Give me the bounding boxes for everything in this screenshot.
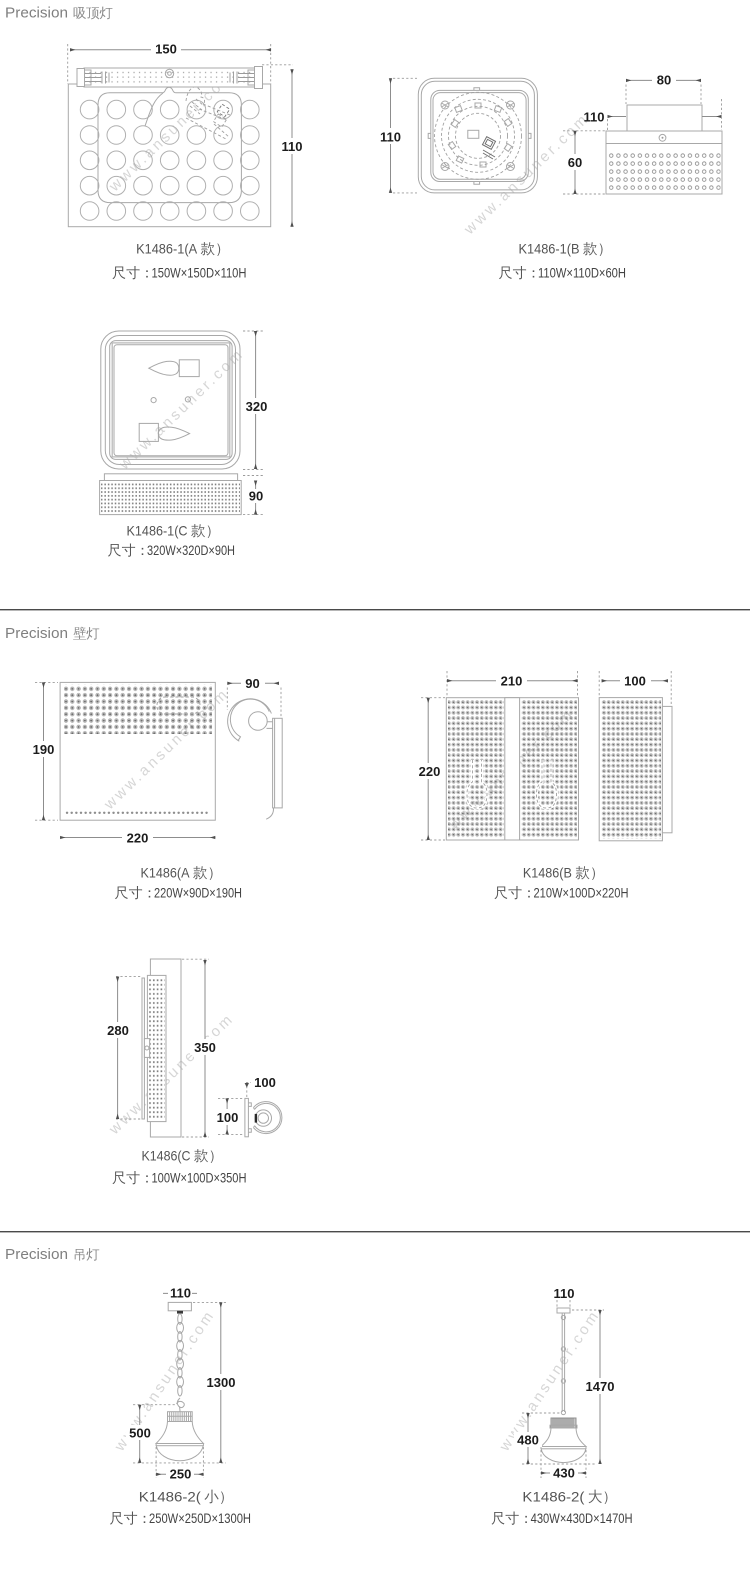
- svg-text:150: 150: [155, 42, 177, 57]
- svg-text:250W×250D×1300H: 250W×250D×1300H: [149, 1511, 251, 1526]
- svg-text:K1486-2(: K1486-2(: [522, 1489, 584, 1505]
- svg-text:100: 100: [624, 674, 646, 689]
- svg-text:100: 100: [254, 1075, 276, 1090]
- svg-text:500: 500: [129, 1426, 151, 1441]
- svg-text:110: 110: [554, 1286, 575, 1301]
- svg-text:1470: 1470: [586, 1379, 615, 1394]
- svg-text:350: 350: [194, 1040, 216, 1055]
- svg-text:K1486-1(B: K1486-1(B: [519, 241, 580, 257]
- svg-text:480: 480: [517, 1433, 539, 1448]
- svg-text:100: 100: [217, 1110, 239, 1125]
- svg-text:K1486(A: K1486(A: [141, 865, 191, 881]
- svg-text:110: 110: [282, 139, 303, 154]
- svg-text:80: 80: [657, 73, 671, 88]
- svg-text:320: 320: [246, 399, 268, 414]
- svg-text:220: 220: [127, 831, 149, 846]
- svg-text:250: 250: [170, 1467, 192, 1482]
- svg-text:Precision: Precision: [5, 625, 68, 642]
- svg-text:1300: 1300: [207, 1375, 236, 1390]
- svg-text:110: 110: [380, 130, 401, 145]
- svg-text:Precision: Precision: [5, 5, 68, 22]
- svg-text:190: 190: [33, 742, 55, 757]
- svg-text:220W×90D×190H: 220W×90D×190H: [154, 886, 242, 901]
- svg-text:150W×150D×110H: 150W×150D×110H: [152, 266, 247, 281]
- svg-text:100W×100D×350H: 100W×100D×350H: [152, 1171, 247, 1186]
- svg-text:110W×110D×60H: 110W×110D×60H: [538, 266, 626, 281]
- svg-text:320W×320D×90H: 320W×320D×90H: [147, 543, 235, 558]
- svg-text:210: 210: [501, 674, 523, 689]
- svg-text:K1486-1(C: K1486-1(C: [127, 523, 188, 539]
- svg-text:210W×100D×220H: 210W×100D×220H: [534, 886, 629, 901]
- svg-text:Precision: Precision: [5, 1246, 68, 1263]
- svg-text:110: 110: [170, 1286, 191, 1301]
- svg-text:220: 220: [419, 764, 441, 779]
- svg-text:90: 90: [249, 489, 263, 504]
- svg-text:110: 110: [584, 110, 605, 125]
- svg-text:90: 90: [245, 676, 259, 691]
- svg-text:K1486(C: K1486(C: [142, 1148, 191, 1164]
- svg-text:60: 60: [568, 155, 582, 170]
- svg-text:K1486-2(: K1486-2(: [139, 1489, 201, 1505]
- svg-text:430W×430D×1470H: 430W×430D×1470H: [531, 1511, 633, 1526]
- svg-text:280: 280: [107, 1023, 129, 1038]
- svg-text:K1486(B: K1486(B: [523, 865, 572, 881]
- svg-text:430: 430: [553, 1465, 575, 1480]
- svg-text:K1486-1(A: K1486-1(A: [136, 241, 198, 257]
